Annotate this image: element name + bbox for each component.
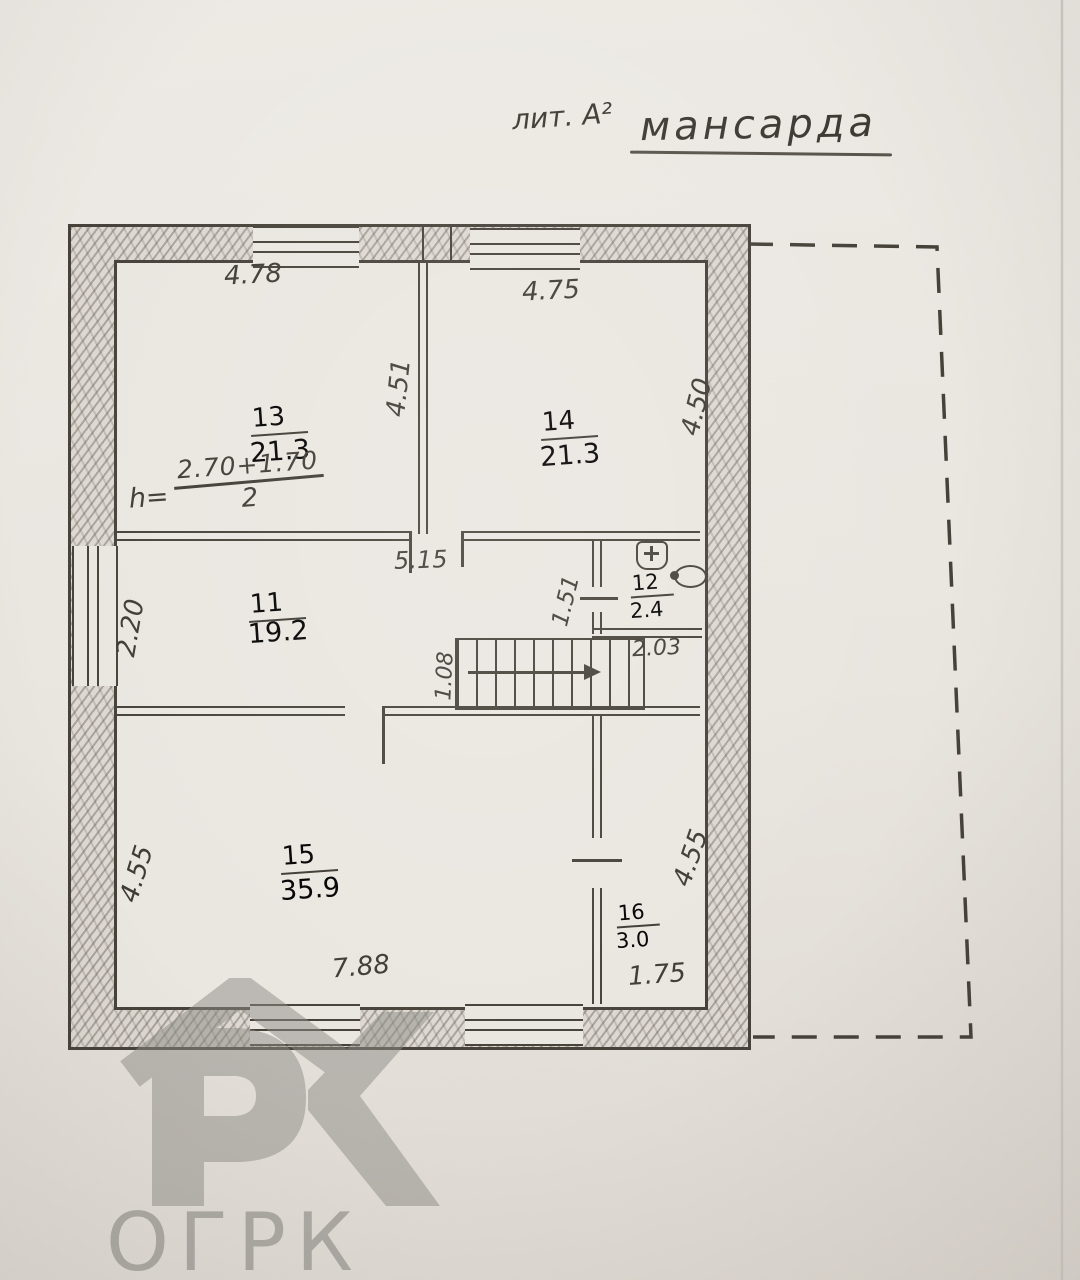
scanned-floorplan-page: лит. А² мансарда 4.78 4.7	[0, 0, 1080, 1280]
dim-landing-width: 2.03	[631, 635, 681, 663]
dim-room14-width: 4.75	[521, 275, 580, 308]
room-label-15: 15 35.9	[280, 840, 340, 905]
dim-stairs-width: 1.08	[431, 651, 459, 701]
room-number: 16	[615, 899, 660, 929]
room-label-11: 11 19.2	[248, 588, 308, 648]
dim-room11-width: 5.15	[394, 545, 448, 575]
dim-room13-depth: 4.51	[381, 358, 417, 419]
room-number: 15	[279, 838, 338, 875]
room-area: 35.9	[279, 872, 341, 907]
room-label-16: 16 3.0	[616, 900, 659, 952]
formula-fraction: 2.70+1.70 2	[172, 445, 326, 518]
room-area: 21.3	[539, 438, 601, 473]
dim-room16-width: 1.75	[627, 958, 687, 992]
room-number: 13	[249, 400, 308, 437]
room-area: 19.2	[247, 615, 309, 650]
room-label-12: 12 2.4	[630, 570, 673, 622]
room-number: 12	[629, 569, 674, 599]
room-area: 2.4	[629, 597, 664, 623]
room-area: 3.0	[615, 927, 650, 953]
formula-denominator: 2	[241, 482, 260, 513]
formula-lhs: h=	[128, 481, 170, 515]
room-label-14: 14 21.3	[540, 406, 600, 471]
room-number: 14	[539, 404, 598, 441]
dim-room13-width: 4.78	[223, 259, 282, 292]
ogrk-logo	[88, 978, 458, 1213]
watermark-text: ОГРК	[106, 1196, 363, 1280]
